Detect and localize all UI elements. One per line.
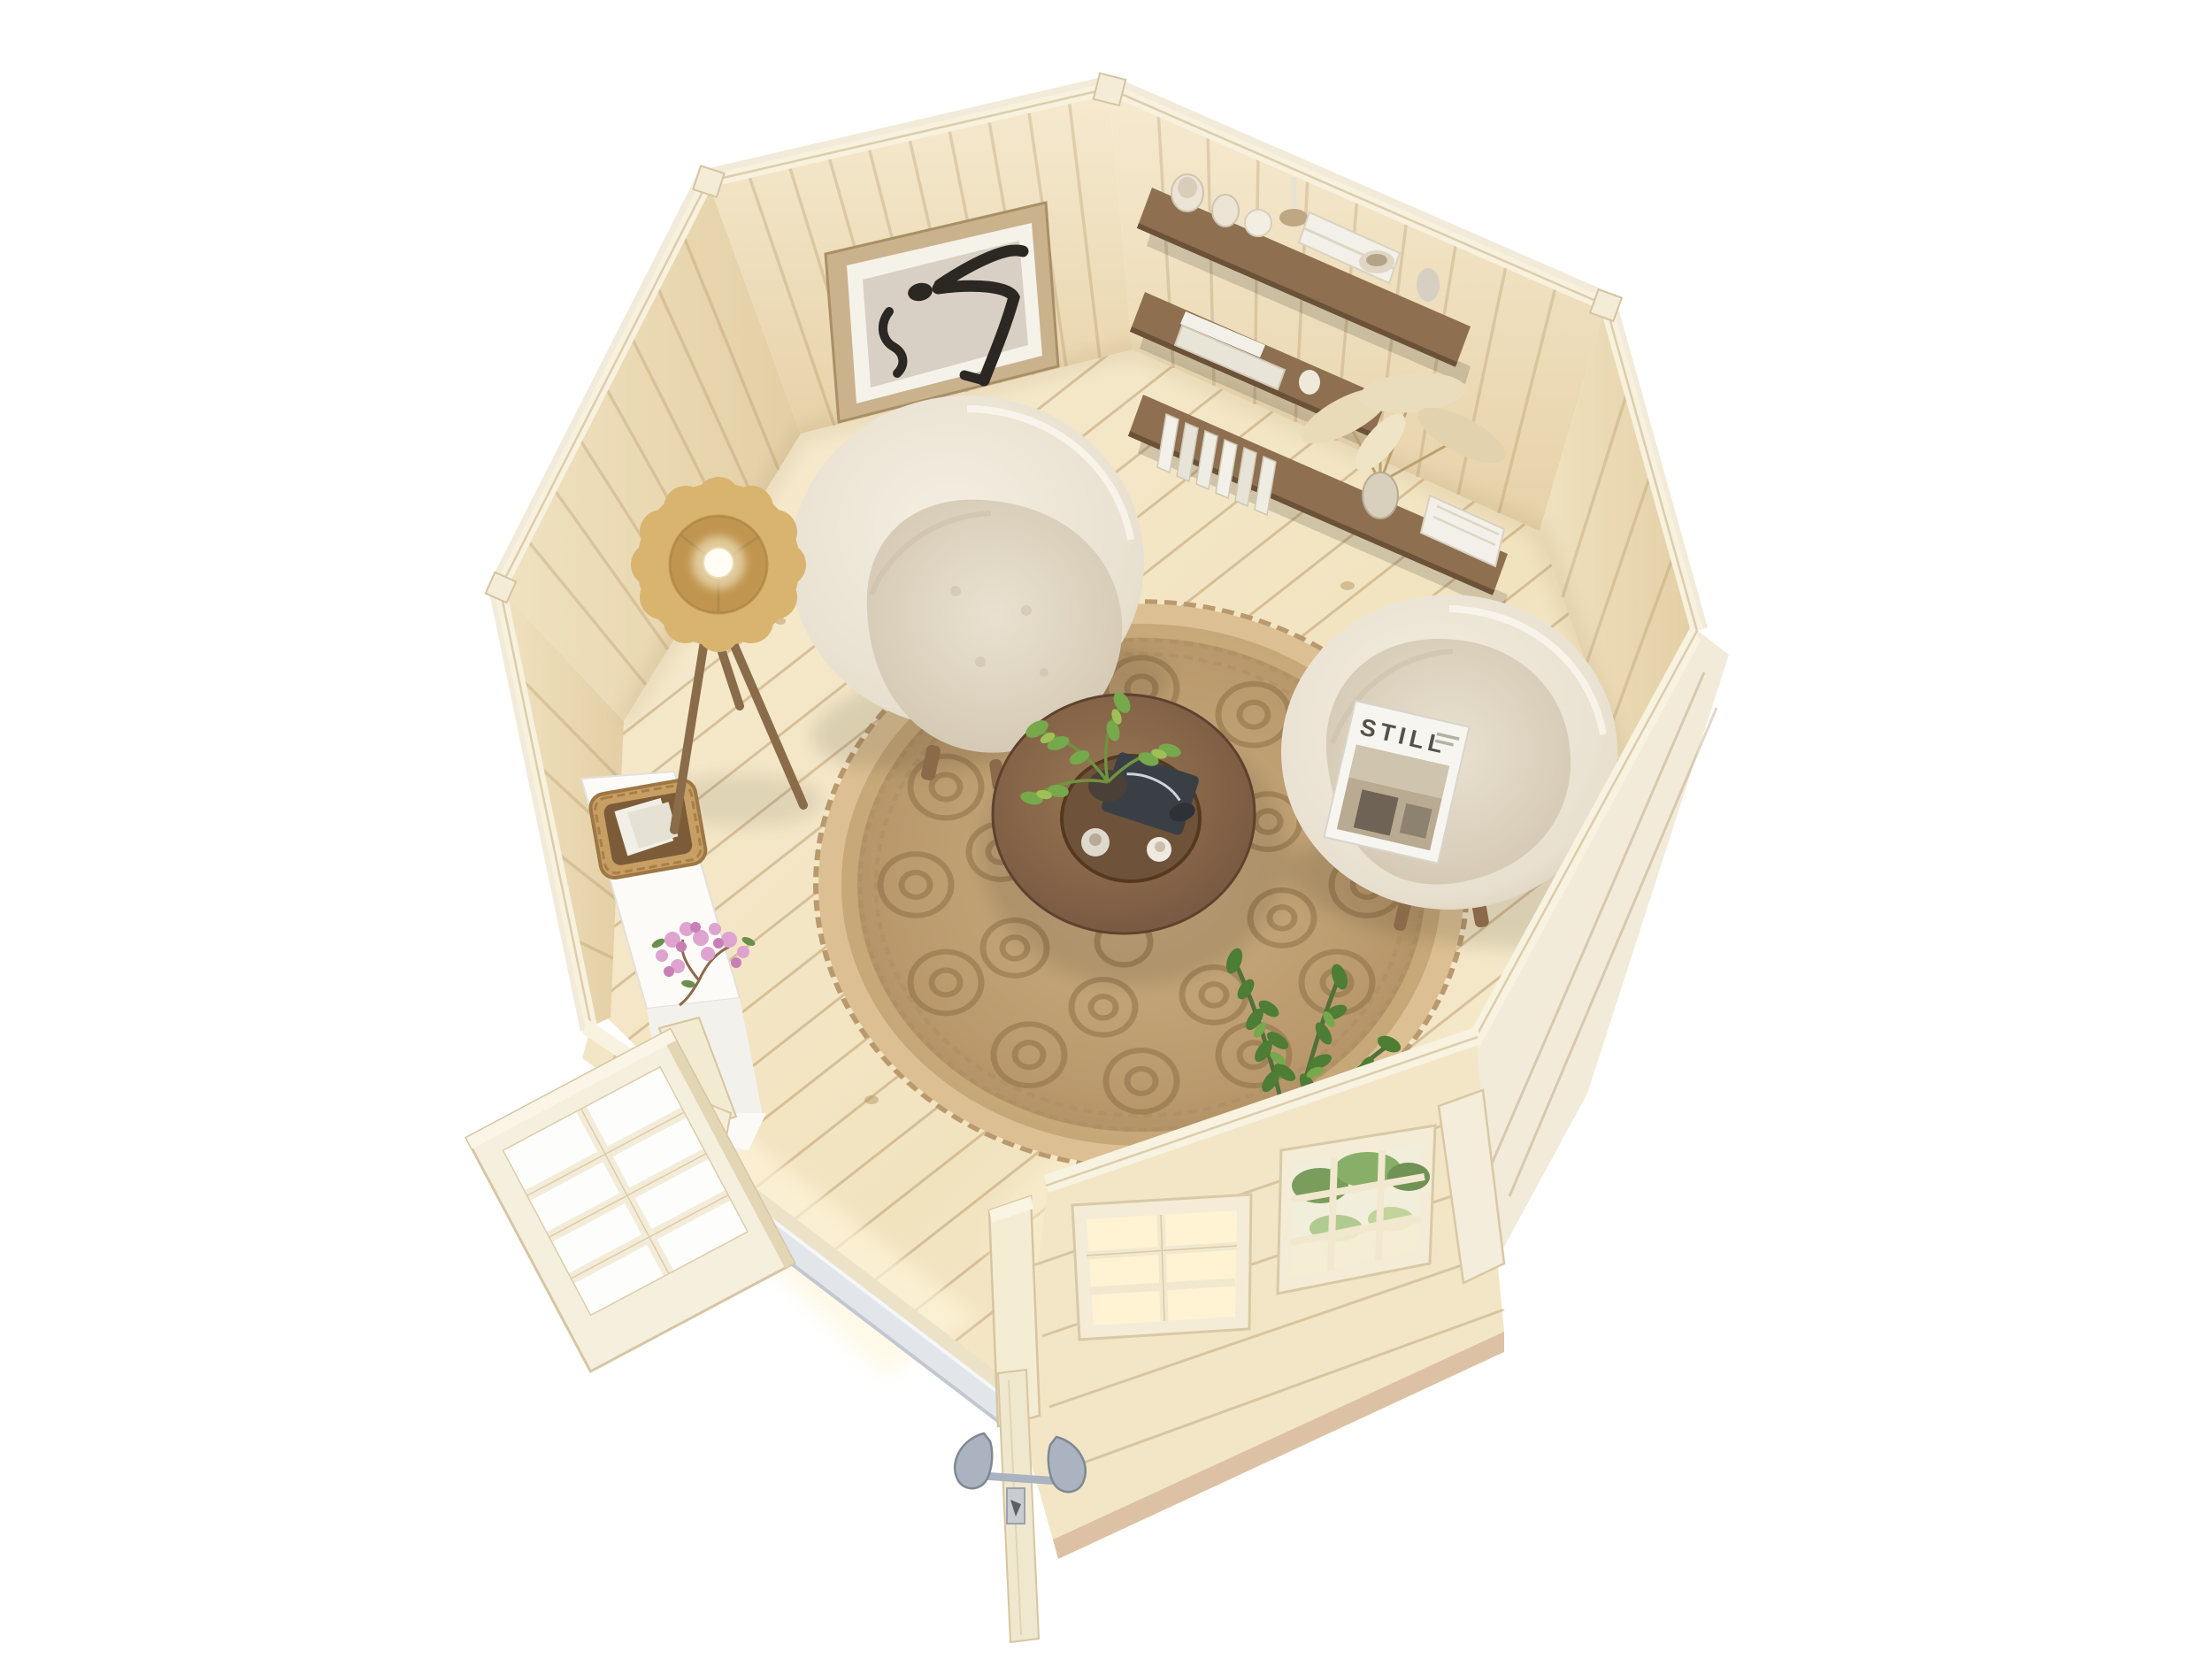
light-bulb (703, 548, 733, 578)
lever-handle-outside (955, 1433, 992, 1488)
front-window-left (1072, 1194, 1251, 1340)
pampas-vase (1363, 472, 1398, 518)
render-canvas: STILL (0, 0, 2212, 1659)
front-window-right (1278, 1125, 1435, 1294)
basket (588, 778, 708, 879)
cabin-render: STILL (0, 0, 2212, 1659)
